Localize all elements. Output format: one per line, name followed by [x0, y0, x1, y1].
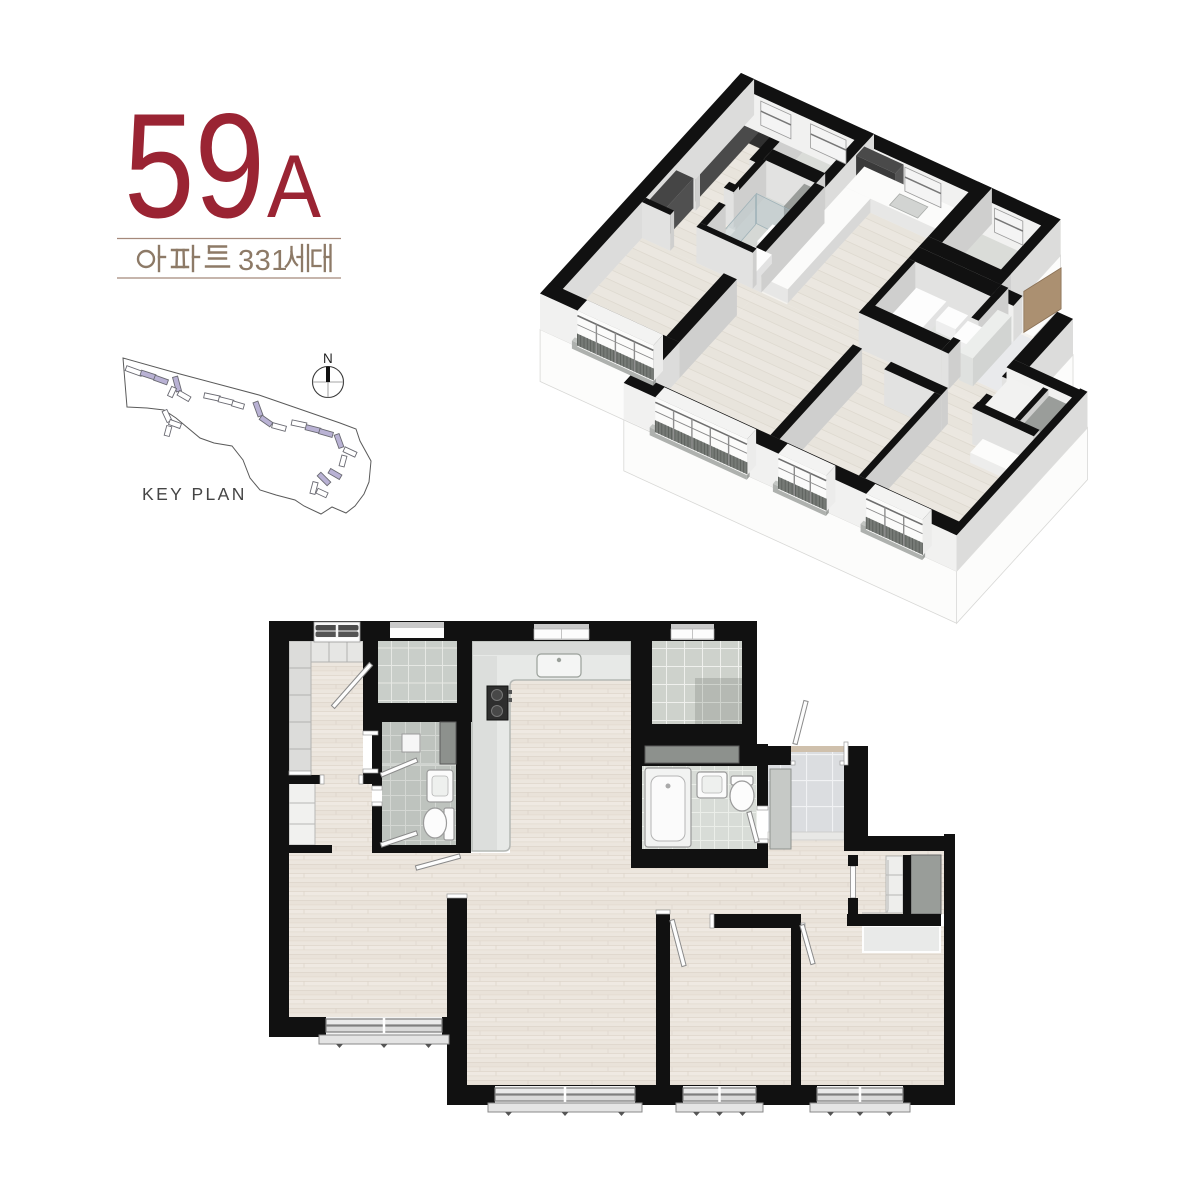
svg-text:A: A [267, 136, 322, 236]
svg-text:331: 331 [238, 245, 288, 277]
svg-text:KEY PLAN: KEY PLAN [142, 484, 247, 504]
svg-text:59: 59 [124, 82, 265, 249]
svg-text:N: N [323, 351, 333, 366]
